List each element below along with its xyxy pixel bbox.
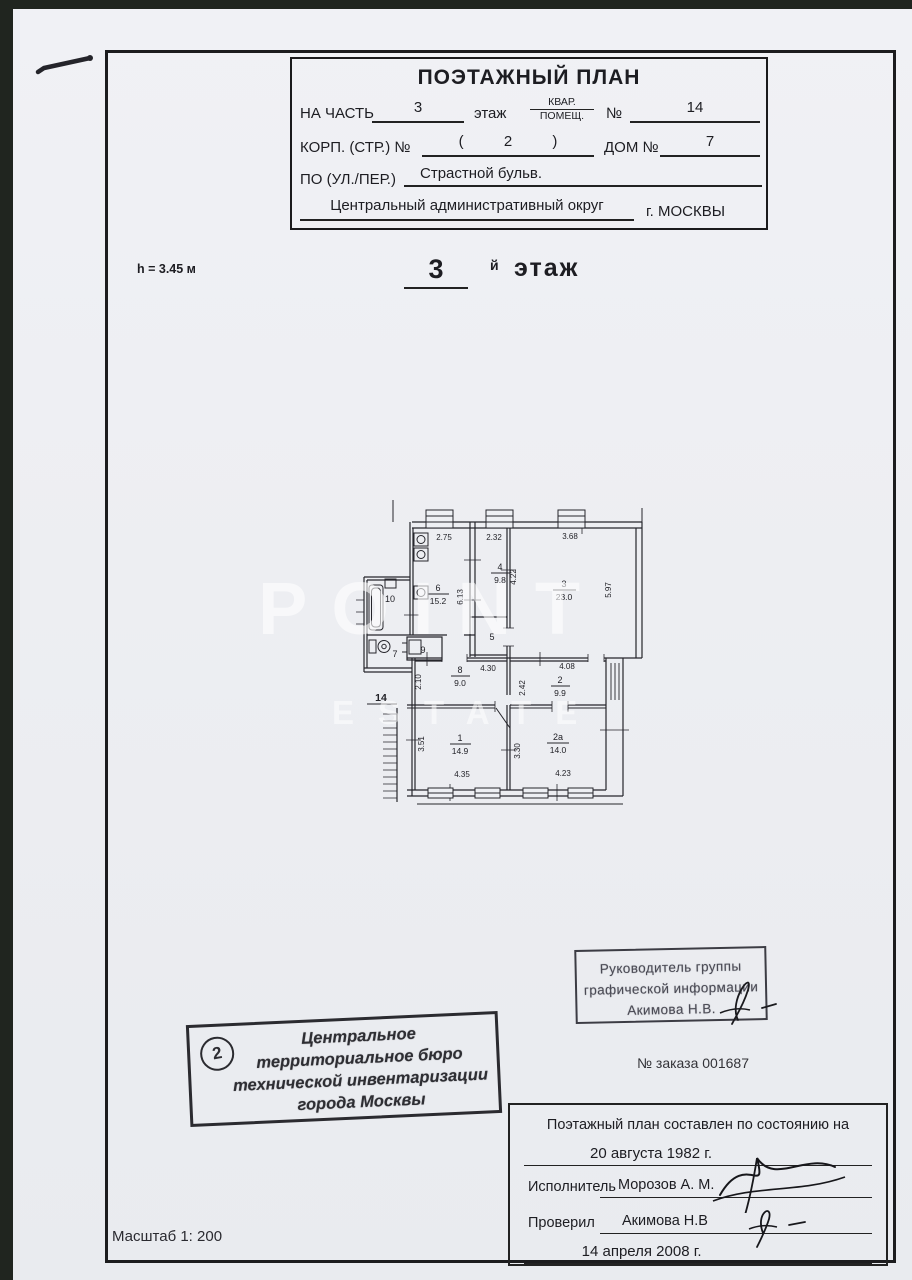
room-area: 9.0 [454,678,466,688]
apartment-value: 14 [687,99,704,116]
room-area: 23.0 [556,592,573,602]
room-number: 1 [457,733,462,743]
kvar-pomesch-fraction: КВАР. ПОМЕЩ. [530,96,594,122]
checker-name: Акимова Н.В [622,1213,708,1229]
field-korp-value-box: ( 2 ) [422,133,594,157]
field-number-label: № [606,105,622,122]
korp-value: 2 [504,133,512,150]
room-number: 2а [553,732,563,742]
bureau-stamp: 2 Центральное территориальное бюро техни… [186,1011,502,1127]
dim-label: 4.35 [454,770,470,779]
floor-heading-suffix: й [490,257,499,273]
field-apartment-value-box: 14 [630,99,760,123]
paren-close: ) [552,133,557,150]
dim-label: 4.30 [480,664,496,673]
dim-label: 2.42 [518,680,527,696]
field-na-chast-label: НА ЧАСТЬ [300,105,374,122]
dim-label: 4.23 [555,769,571,778]
executor-name: Морозов А. М. [618,1177,714,1193]
room-area: 9.8 [494,575,506,585]
street-value: Страстной бульв. [420,165,542,182]
dim-label: 3.51 [417,736,426,752]
room-area: 14.9 [452,746,469,756]
floor-value: 3 [414,99,422,116]
paren-open: ( [459,133,464,150]
floor-heading-number: 3 [404,254,468,289]
order-number: № заказа 001687 [637,1055,749,1071]
dim-label: 4.22 [509,569,518,585]
room-number: 6 [435,583,440,593]
room-number: 3 [561,579,566,589]
group-stamp-line2: графической информации [577,977,765,1002]
apartment-number-label: 14 [375,692,387,704]
plan-walls [356,500,642,804]
field-korp-label: КОРП. (СТР.) № [300,139,410,156]
executor-label: Исполнитель [528,1179,616,1195]
city-value: г. МОСКВЫ [646,203,725,220]
field-district-box: Центральный административный округ [300,197,634,221]
footer-underline [600,1233,872,1234]
ceiling-height-note: h = 3.45 м [137,262,196,276]
dom-value: 7 [706,133,714,150]
dimension-labels: 2.75 2.32 3.68 6.13 4.22 5.97 4.30 2.10 … [414,532,613,779]
stove-icon [414,548,428,561]
header-box: ПОЭТАЖНЫЙ ПЛАН НА ЧАСТЬ 3 этаж КВАР. ПОМ… [290,57,768,230]
field-street-value-box: Страстной бульв. [404,165,762,187]
group-leader-stamp: Руководитель группы графической информац… [574,946,768,1024]
footer-date-2008: 14 апреля 2008 г. [510,1243,773,1260]
footer-underline [524,1165,872,1166]
field-dom-label: ДОМ № [604,139,659,156]
footer-date-1982: 20 августа 1982 г. [510,1145,792,1162]
room-number: 8 [457,665,462,675]
room-area: 14.0 [550,745,567,755]
page-title: ПОЭТАЖНЫЙ ПЛАН [292,66,766,90]
field-etazh-label: этаж [474,105,506,122]
kitchen-sink-icon [414,586,428,599]
pen-mark [28,48,108,82]
room-number: 4 [497,562,502,572]
plumbing-fixtures [369,533,428,654]
field-floor-value-box: 3 [372,99,464,123]
room-area: 9.9 [554,688,566,698]
dim-label: 2.75 [436,533,452,542]
kvar-label: КВАР. [530,96,594,110]
footer-underline [524,1263,872,1264]
scanned-floor-plan-page: { "header": { "title": "ПОЭТАЖНЫЙ ПЛАН",… [0,0,912,1280]
room-number: 10 [385,594,395,604]
footer-underline [600,1197,872,1198]
signature-akimova [735,1203,845,1248]
district-value: Центральный административный округ [330,197,604,214]
footer-table: Поэтажный план составлен по состоянию на… [508,1103,888,1266]
dim-label: 3.68 [562,532,578,541]
dim-label: 2.10 [414,674,423,690]
dim-label: 6.13 [456,589,465,605]
scale-note: Масштаб 1: 200 [112,1228,222,1245]
floor-plan-drawing: 6 15.2 4 9.8 3 23.0 5 9 10 7 8 9.0 2 9.9… [352,500,652,810]
dim-label: 5.97 [604,582,613,598]
stove-icon [414,533,428,546]
toilet-tank-icon [369,640,376,653]
toilet-bowl-icon [378,641,390,653]
dim-label: 3.30 [513,743,522,759]
floor-heading-word: этаж [514,254,579,283]
room-number: 5 [489,632,494,642]
checker-label: Проверил [528,1215,595,1231]
pomesch-label: ПОМЕЩ. [530,110,594,122]
room-number: 2 [557,675,562,685]
room-number: 9 [420,645,425,655]
dim-label: 4.08 [559,662,575,671]
field-street-label: ПО (УЛ./ПЕР.) [300,171,396,188]
footer-title: Поэтажный план составлен по состоянию на [510,1117,886,1133]
field-dom-value-box: 7 [660,133,760,157]
cabinet-icon [409,640,421,654]
dim-label: 2.32 [486,533,502,542]
room-area: 15.2 [430,596,447,606]
bureau-stamp-text: Центральное территориальное бюро техниче… [225,1020,495,1120]
room-number: 7 [392,649,397,659]
group-stamp-line3: Акимова Н.В. [577,998,765,1023]
